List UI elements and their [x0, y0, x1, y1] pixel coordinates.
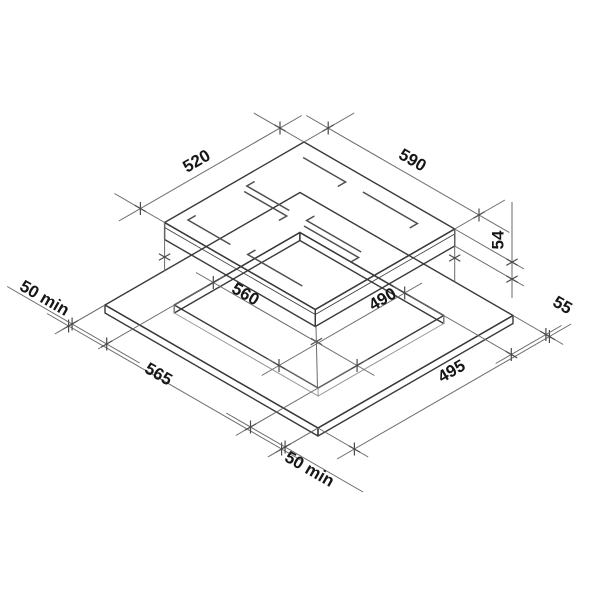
dim-54-label: 54	[488, 230, 507, 249]
countertop-side-face-right	[318, 316, 513, 437]
dim-520-line	[119, 116, 302, 222]
zone-front-right-bracket-ne	[304, 226, 359, 262]
cutout-inner-wall-left	[174, 233, 300, 314]
hob-side-face-right	[315, 229, 454, 327]
dim-590-label: 590	[395, 145, 429, 176]
zone-back-right-bracket-sw	[307, 216, 362, 252]
dimension-hob-590: 590	[304, 113, 509, 233]
cooking-zone-marks	[188, 158, 417, 287]
dimension-margin-50-left: 50 min	[7, 276, 174, 363]
dim-50min-bottom-label: 50 min	[281, 447, 337, 490]
dimension-counter-565: 565	[47, 305, 318, 462]
dim-50min-left-label: 50 min	[16, 276, 72, 319]
dimension-counter-495: 495	[318, 316, 571, 460]
projection-front	[316, 327, 318, 389]
dimension-cutout-490: 490	[262, 283, 444, 388]
dimension-hob-height-54: 54	[455, 202, 524, 298]
dim-490-label: 490	[365, 284, 399, 315]
dim-495-label: 495	[434, 356, 468, 387]
dim-565-line	[47, 314, 303, 462]
dimension-margin-50-bottom: 50 min	[226, 388, 363, 492]
dim-495-line	[337, 324, 571, 459]
dim-520-label: 520	[179, 146, 213, 177]
zone-back-right-bracket-ne	[363, 192, 418, 228]
dim-560-label: 560	[228, 279, 262, 310]
dim-495-extension-south	[318, 428, 368, 457]
dim-495-extension-east	[513, 316, 563, 345]
dim-55-label: 55	[550, 292, 576, 318]
dim-490-line	[262, 283, 422, 376]
isometric-drawing-canvas: 520 590 54 560 490	[0, 0, 600, 600]
installation-diagram: 520 590 54 560 490	[0, 0, 600, 600]
dim-560-line	[196, 273, 374, 376]
dim-55-line	[496, 326, 562, 364]
